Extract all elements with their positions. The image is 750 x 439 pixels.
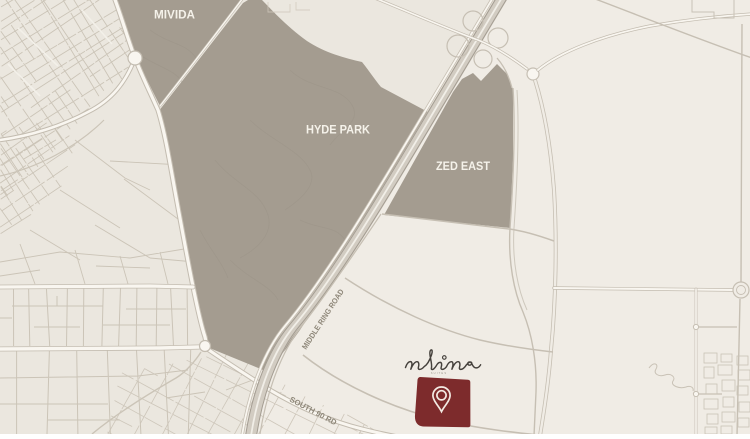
svg-text:SUITES: SUITES <box>431 371 448 375</box>
svg-text:HYDE PARK: HYDE PARK <box>306 123 370 137</box>
svg-text:ZED EAST: ZED EAST <box>436 159 490 173</box>
svg-text:MIVIDA: MIVIDA <box>154 8 195 22</box>
